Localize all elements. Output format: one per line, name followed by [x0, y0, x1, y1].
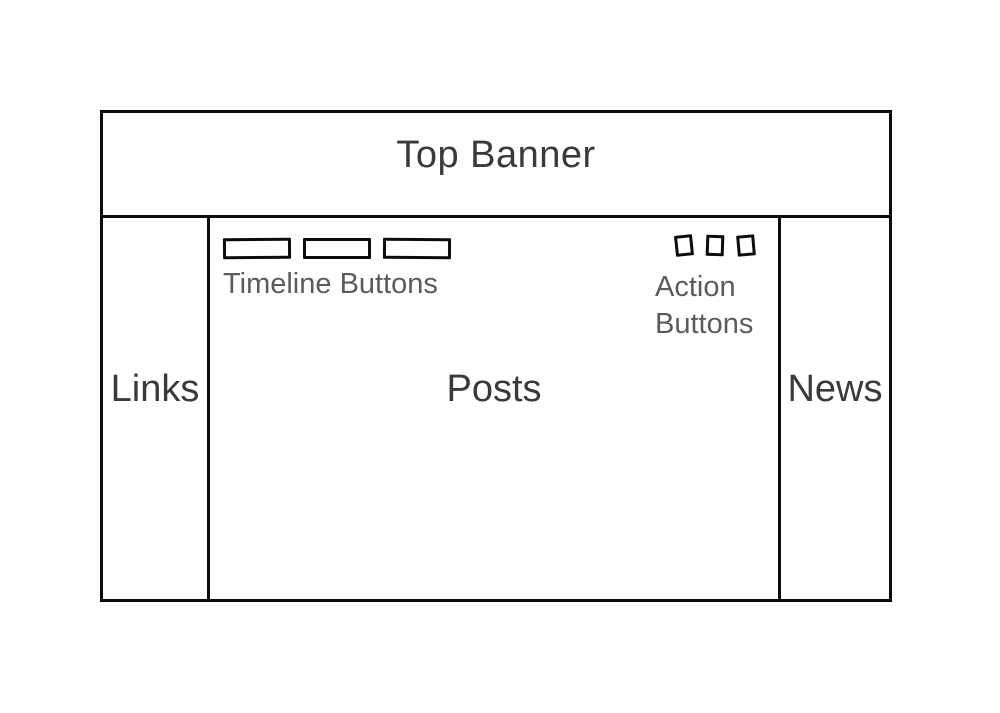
timeline-button-1[interactable]: [223, 238, 291, 259]
top-banner: Top Banner: [103, 113, 889, 218]
timeline-button-3[interactable]: [383, 238, 451, 259]
news-sidebar-label: News: [781, 371, 889, 408]
action-button-1[interactable]: [674, 234, 694, 257]
wireframe-canvas: Top Banner Links Posts News Timeline But…: [0, 0, 1000, 713]
action-buttons-group: [675, 235, 755, 256]
left-column-divider: [207, 218, 210, 599]
timeline-button-2[interactable]: [303, 238, 371, 259]
links-sidebar-label: Links: [103, 371, 207, 408]
action-button-2[interactable]: [706, 235, 725, 257]
top-banner-label: Top Banner: [396, 134, 595, 177]
timeline-buttons-group: [223, 238, 451, 259]
wireframe-frame: Top Banner Links Posts News Timeline But…: [100, 110, 892, 602]
timeline-buttons-label: Timeline Buttons: [223, 270, 438, 299]
action-buttons-label-line2: Buttons: [655, 306, 753, 343]
right-column-divider: [778, 218, 781, 599]
action-buttons-label-line1: Action: [655, 269, 753, 306]
action-buttons-label: Action Buttons: [655, 269, 753, 343]
posts-area-label: Posts: [210, 371, 778, 408]
action-button-3[interactable]: [736, 234, 756, 256]
